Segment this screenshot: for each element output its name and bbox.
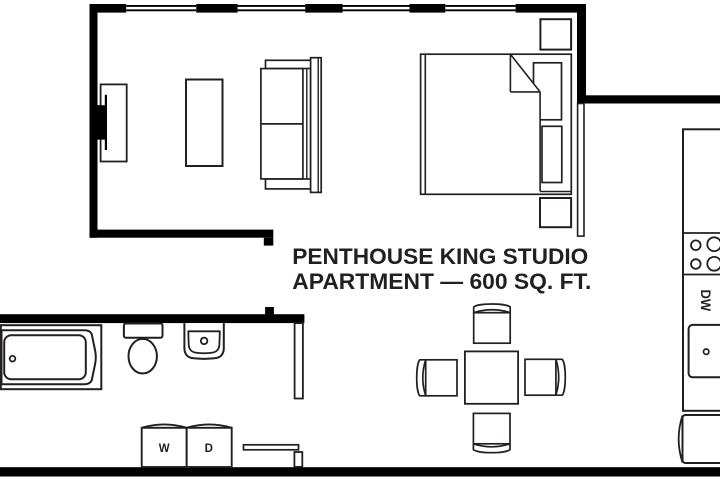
svg-text:W: W xyxy=(159,443,170,455)
svg-text:D: D xyxy=(205,443,213,455)
svg-text:PENTHOUSE KING STUDIO: PENTHOUSE KING STUDIO xyxy=(292,244,588,269)
svg-text:APARTMENT — 600 SQ. FT.: APARTMENT — 600 SQ. FT. xyxy=(292,269,591,294)
svg-text:DW: DW xyxy=(698,290,714,312)
